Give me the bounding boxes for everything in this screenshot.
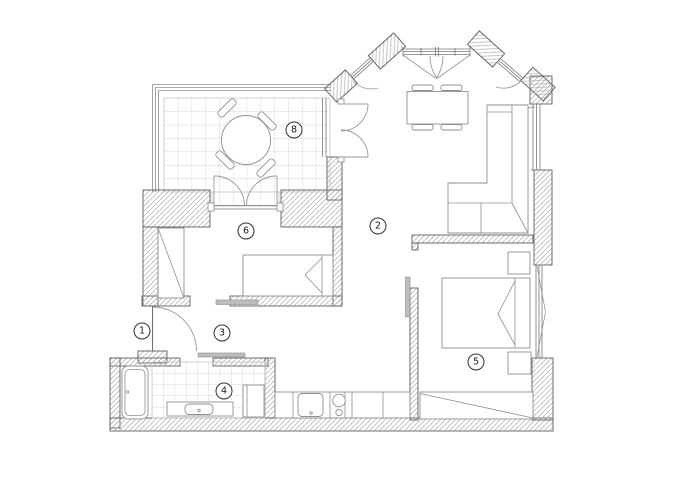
kitchen <box>275 392 410 418</box>
terrace-tile-floor <box>212 192 279 206</box>
sliding-door-icon <box>216 300 258 305</box>
living-room <box>407 85 528 233</box>
floor-plan-page: 1 2 3 4 5 6 8 <box>0 0 700 500</box>
wall <box>410 288 418 420</box>
bathtub-icon <box>122 366 148 419</box>
room-label-4: 4 <box>216 383 232 399</box>
bay-window-right-icon <box>496 59 523 88</box>
svg-text:3: 3 <box>219 328 225 339</box>
bathroom <box>122 362 265 419</box>
room-label-6: 6 <box>238 223 254 239</box>
room-label-2: 2 <box>370 218 386 234</box>
round-table-icon <box>222 116 271 165</box>
svg-text:4: 4 <box>221 386 227 397</box>
wall <box>265 358 275 418</box>
svg-text:1: 1 <box>139 326 145 337</box>
bay-window-center-icon <box>403 47 470 79</box>
svg-text:2: 2 <box>375 221 381 232</box>
svg-text:8: 8 <box>291 125 297 136</box>
floor-plan-drawing: 1 2 3 4 5 6 8 <box>0 0 700 500</box>
double-bed-icon <box>442 278 530 348</box>
dining-table-icon <box>407 92 468 125</box>
wall <box>110 418 553 431</box>
bedroom-window-icon <box>534 265 546 358</box>
dining-chair-icon <box>412 125 433 131</box>
dining-chair-icon <box>441 85 462 91</box>
wall <box>327 157 342 200</box>
nightstand-icon <box>508 352 531 374</box>
nightstand-icon <box>508 252 530 274</box>
wall <box>333 227 342 306</box>
dining-chair-icon <box>441 125 462 131</box>
wardrobe-icon <box>158 228 184 298</box>
room-label-1: 1 <box>134 323 150 339</box>
sliding-door-icon <box>406 277 411 317</box>
svg-text:6: 6 <box>243 226 249 237</box>
wall <box>412 235 533 243</box>
room-label-8: 8 <box>286 122 302 138</box>
vanity-sink-icon <box>167 402 233 416</box>
main-bedroom <box>420 252 533 419</box>
wardrobe-icon <box>420 392 533 419</box>
bay-pillar <box>325 70 358 102</box>
room-label-5: 5 <box>468 354 484 370</box>
terrace <box>153 85 332 207</box>
bay-pillar <box>467 31 504 67</box>
room-label-3: 3 <box>214 325 230 341</box>
kitchen-sink-icon <box>298 394 323 417</box>
wall <box>110 358 120 428</box>
washing-machine-icon <box>243 385 264 417</box>
bay-pillar <box>368 33 405 69</box>
wall <box>532 358 553 420</box>
balcony-french-door-icon <box>338 99 368 162</box>
wall <box>534 170 552 265</box>
sliding-door-icon <box>198 353 245 357</box>
wall <box>143 190 210 227</box>
entrance-door-icon <box>153 306 197 351</box>
single-bed-icon <box>243 255 333 296</box>
svg-text:5: 5 <box>473 357 479 368</box>
dining-chair-icon <box>412 85 433 91</box>
wall <box>143 227 158 306</box>
wall <box>412 243 418 250</box>
